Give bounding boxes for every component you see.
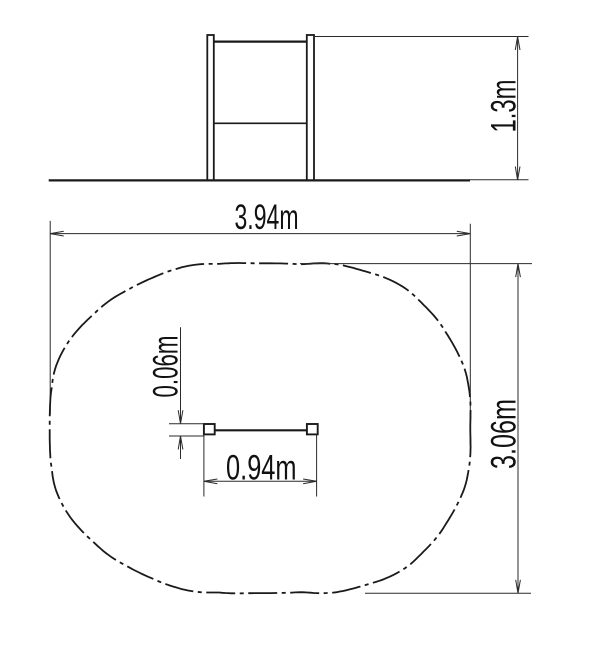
svg-text:1.3m: 1.3m	[483, 80, 523, 133]
svg-text:3.94m: 3.94m	[235, 197, 299, 237]
svg-text:3.06m: 3.06m	[484, 399, 524, 469]
svg-text:0.94m: 0.94m	[226, 447, 297, 487]
svg-text:0.06m: 0.06m	[146, 336, 186, 398]
